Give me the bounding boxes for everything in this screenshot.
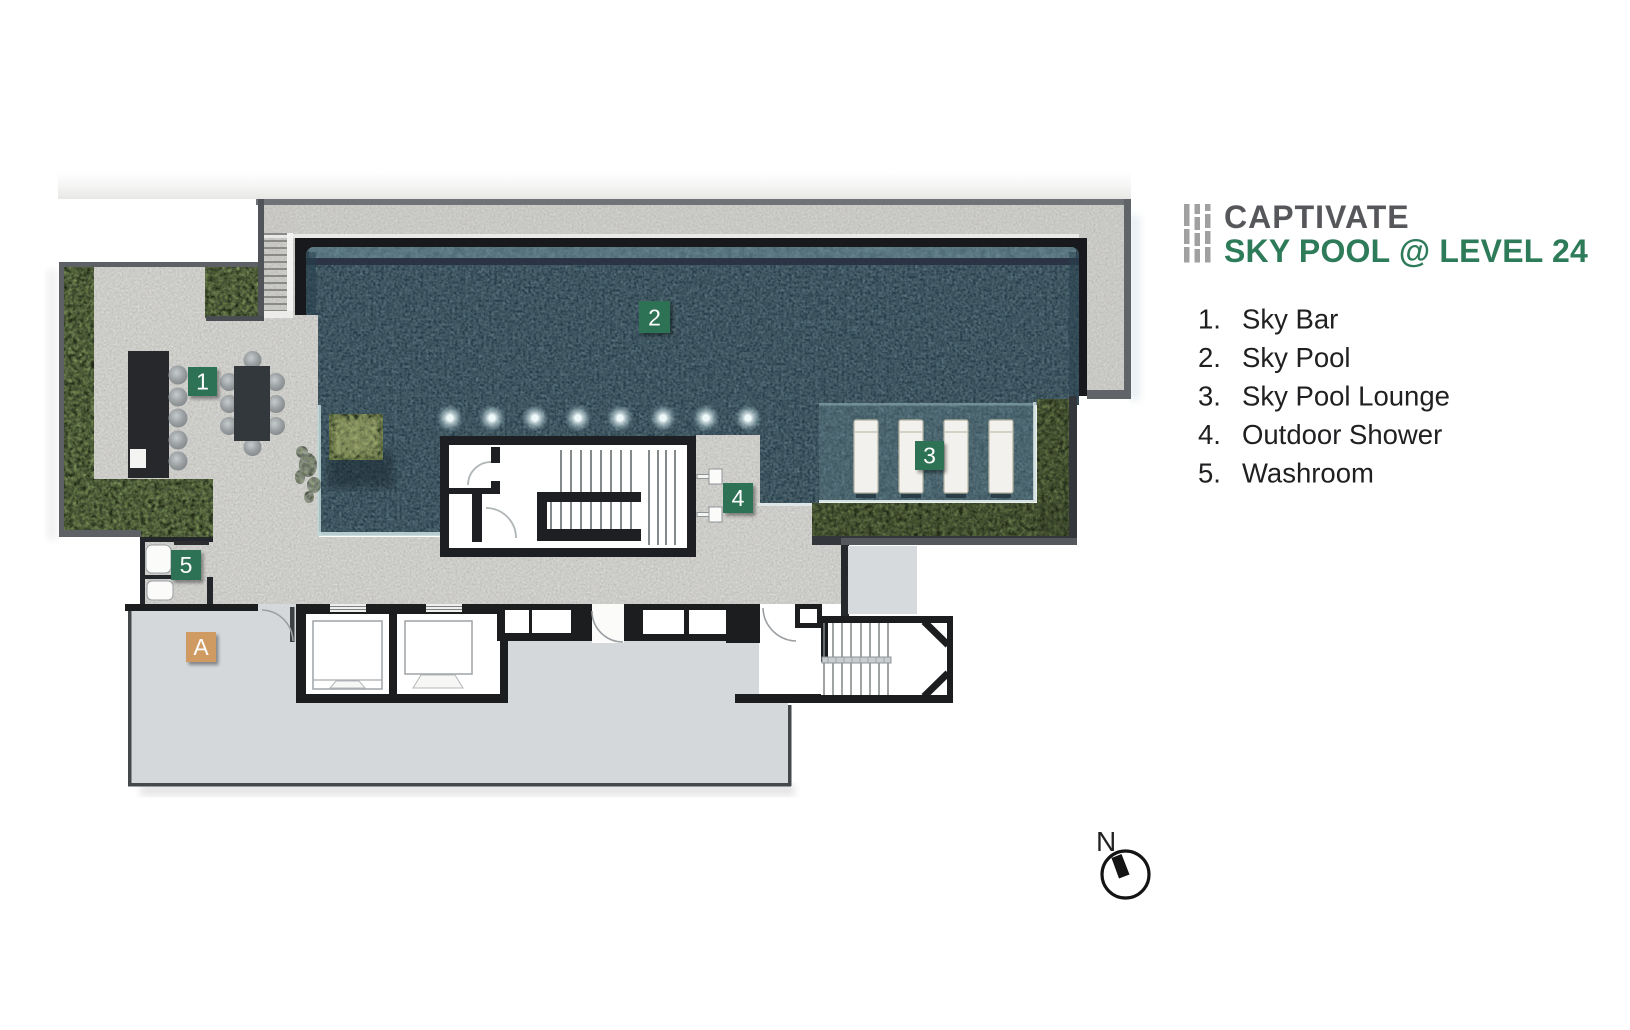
svg-text:Sky Pool: Sky Pool <box>1242 342 1351 373</box>
svg-text:1: 1 <box>196 369 209 395</box>
svg-text:Sky Bar: Sky Bar <box>1242 304 1338 335</box>
svg-text:A: A <box>193 634 209 660</box>
svg-text:3.: 3. <box>1198 381 1221 412</box>
svg-text:4.: 4. <box>1198 419 1221 450</box>
svg-text:4: 4 <box>732 485 745 511</box>
svg-text:Outdoor Shower: Outdoor Shower <box>1242 419 1442 450</box>
svg-text:SKY POOL @ LEVEL 24: SKY POOL @ LEVEL 24 <box>1224 233 1588 269</box>
svg-text:2.: 2. <box>1198 342 1221 373</box>
svg-text:Sky Pool Lounge: Sky Pool Lounge <box>1242 381 1450 412</box>
svg-text:CAPTIVATE: CAPTIVATE <box>1224 199 1410 235</box>
svg-text:5.: 5. <box>1198 458 1221 489</box>
svg-text:2: 2 <box>648 305 661 331</box>
svg-text:3: 3 <box>923 443 936 469</box>
svg-text:Washroom: Washroom <box>1242 458 1374 489</box>
svg-text:5: 5 <box>180 552 193 578</box>
svg-text:N: N <box>1096 826 1116 857</box>
svg-text:1.: 1. <box>1198 304 1221 335</box>
